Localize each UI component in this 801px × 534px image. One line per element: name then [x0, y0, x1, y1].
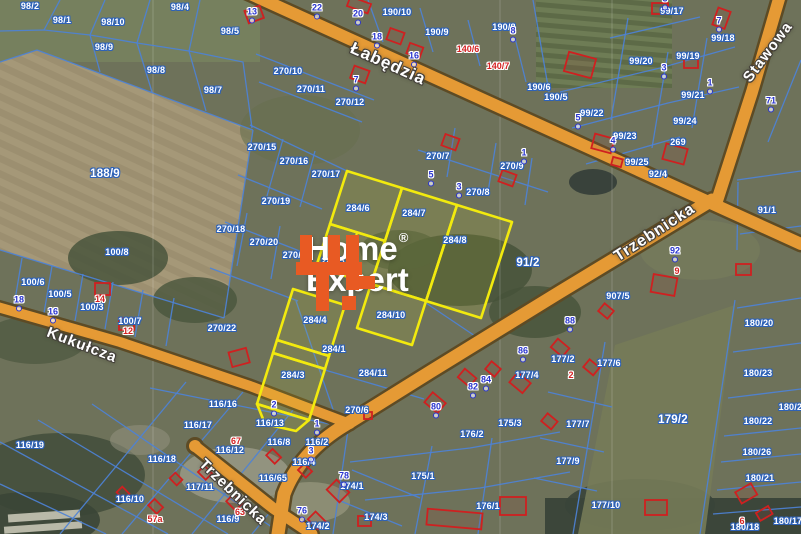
parcel-label: 284/8: [443, 235, 467, 245]
parcel-label: 177/9: [556, 456, 580, 466]
parcel-label: 270/7: [426, 151, 450, 161]
house-number-label: 8: [510, 26, 516, 43]
parcel-label: 180/21: [746, 473, 775, 483]
parcel-label: 176/1: [476, 501, 500, 511]
building-number-label: 12: [123, 326, 133, 336]
house-number-label: 20: [353, 9, 363, 26]
house-number-label: 86: [518, 346, 528, 363]
parcel-label: 270/17: [312, 169, 341, 179]
house-number-label: 7: [716, 16, 722, 33]
parcel-label: 99/19: [676, 51, 700, 61]
address-point-icon: [271, 411, 277, 417]
parcel-label: 270/15: [248, 142, 277, 152]
parcel-label: 98/7: [204, 85, 222, 95]
house-number-label: 7: [353, 75, 359, 92]
parcel-label: 180/17: [774, 516, 801, 526]
address-point-icon: [521, 159, 527, 165]
parcel-label: 98/2: [21, 1, 39, 11]
parcel-label: 177/10: [592, 500, 621, 510]
parcel-label: 270/21: [283, 250, 312, 260]
parcel-label: 99/24: [673, 116, 697, 126]
building-number-label: 140/6: [457, 44, 480, 54]
house-number-label: 76: [297, 506, 307, 523]
building-number-label: 140/7: [487, 61, 510, 71]
house-number-label: 3: [661, 63, 667, 80]
parcel-label: 270/10: [274, 66, 303, 76]
address-point-icon: [433, 413, 439, 419]
parcel-label: 284/6: [346, 203, 370, 213]
house-number-label: 3: [456, 182, 462, 199]
address-point-icon: [314, 14, 320, 20]
house-number-label: 18: [14, 295, 24, 312]
house-number-label: 1: [521, 148, 527, 165]
address-point-icon: [707, 89, 713, 95]
parcel-label: 98/5: [221, 26, 239, 36]
parcel-label: 116/8: [267, 437, 290, 447]
parcel-label: 269: [670, 137, 686, 147]
address-point-icon: [483, 386, 489, 392]
parcel-label: 270/12: [336, 97, 365, 107]
building-number-label: 67: [231, 436, 241, 446]
parcel-label: 284/11: [359, 368, 387, 378]
parcel-label: 91/1: [758, 205, 776, 215]
house-number-label: 1: [314, 419, 320, 436]
parcel-label: 177/2: [551, 354, 575, 364]
address-point-icon: [716, 27, 722, 33]
parcel-label: 98/10: [101, 17, 125, 27]
parcel-label: 284/7: [402, 208, 426, 218]
parcel-label: 190/6: [527, 82, 551, 92]
parcel-label: 180/26: [743, 447, 772, 457]
parcel-label: 116/12: [216, 445, 244, 455]
address-point-icon: [50, 318, 56, 324]
parcel-label: 98/8: [147, 65, 165, 75]
parcel-label: 116/19: [16, 440, 44, 450]
address-point-icon: [353, 86, 359, 92]
address-point-icon: [355, 20, 361, 26]
address-point-icon: [672, 257, 678, 263]
parcel-label: 99/22: [580, 108, 604, 118]
parcel-label: 99/25: [625, 157, 649, 167]
parcel-label: 100/7: [118, 316, 142, 326]
building-number-label: 57a: [147, 514, 162, 524]
address-point-icon: [520, 357, 526, 363]
house-number-label: 80: [431, 402, 441, 419]
house-number-label: 5: [575, 113, 581, 130]
parcel-label: 179/2: [658, 414, 688, 426]
parcel-label: 116/17: [184, 420, 212, 430]
address-point-icon: [299, 517, 305, 523]
house-number-label: 13: [247, 7, 257, 24]
parcel-label: 100/6: [21, 277, 45, 287]
parcel-label: 284/10: [377, 310, 406, 320]
parcel-label: 99/20: [629, 56, 653, 66]
parcel-label: 100/8: [105, 247, 129, 257]
address-point-icon: [661, 74, 667, 80]
parcel-label: 270/20: [250, 237, 279, 247]
parcel-label: 284/4: [303, 315, 327, 325]
parcel-label: 116/10: [116, 494, 144, 504]
parcel-label: 190/9: [425, 27, 449, 37]
parcel-label: 270/11: [297, 84, 325, 94]
parcel-label: 180/20: [745, 318, 774, 328]
address-point-icon: [470, 393, 476, 399]
address-point-icon: [341, 482, 347, 488]
map-canvas[interactable]: 98/298/198/1098/498/998/898/798/5188/910…: [0, 0, 801, 534]
parcel-label: 180/24: [779, 402, 801, 412]
parcel-label: 177/6: [597, 358, 621, 368]
parcel-label: 284/5: [321, 256, 345, 266]
house-number-label: 16: [48, 307, 58, 324]
address-point-icon: [314, 430, 320, 436]
parcel-label: 907/5: [606, 291, 630, 301]
house-number-label: 78: [339, 471, 349, 488]
parcel-label: 270/22: [208, 323, 237, 333]
address-point-icon: [662, 5, 668, 11]
parcel-label: 116/65: [259, 473, 287, 483]
parcel-label: 180/23: [744, 368, 773, 378]
parcel-label: 100/5: [48, 289, 72, 299]
house-number-label: 92: [670, 246, 680, 263]
house-number-label: 71: [766, 96, 776, 113]
parcel-label: 98/1: [53, 15, 71, 25]
parcel-label: 99/21: [681, 90, 705, 100]
house-number-label: 3: [662, 0, 668, 11]
address-point-icon: [428, 181, 434, 187]
house-number-label: 22: [312, 3, 322, 20]
parcel-label: 99/18: [711, 33, 735, 43]
address-point-icon: [249, 18, 255, 24]
parcel-label: 180/22: [744, 416, 773, 426]
parcel-label: 177/7: [566, 419, 590, 429]
house-number-label: 88: [565, 316, 575, 333]
house-number-label: 84: [481, 375, 491, 392]
parcel-label: 98/9: [95, 42, 113, 52]
address-point-icon: [510, 37, 516, 43]
parcel-label: 270/8: [466, 187, 490, 197]
parcel-label: 116/13: [256, 418, 284, 428]
parcel-label: 117/11: [186, 482, 214, 492]
parcel-label: 174/2: [306, 521, 330, 531]
building-number-label: 9: [674, 266, 679, 276]
address-point-icon: [456, 193, 462, 199]
parcel-label: 176/2: [460, 429, 484, 439]
parcel-label: 116/16: [209, 399, 237, 409]
parcel-label: 98/4: [171, 2, 189, 12]
parcel-label: 99/23: [613, 131, 637, 141]
parcel-label: 175/1: [411, 471, 435, 481]
parcel-label: 270/16: [280, 156, 309, 166]
parcel-label: 190/5: [544, 92, 568, 102]
parcel-label: 91/2: [516, 257, 539, 269]
address-point-icon: [308, 457, 314, 463]
parcel-label: 284/3: [281, 370, 305, 380]
address-point-icon: [567, 327, 573, 333]
parcel-label: 270/19: [262, 196, 291, 206]
house-number-label: 82: [468, 382, 478, 399]
parcel-label: 177/4: [515, 370, 539, 380]
address-point-icon: [575, 124, 581, 130]
parcel-label: 174/3: [364, 512, 388, 522]
parcel-label: 188/9: [90, 168, 120, 180]
parcel-label: 180/18: [731, 522, 760, 532]
address-point-icon: [768, 107, 774, 113]
house-number-label: 4: [610, 136, 616, 153]
house-number-label: 3: [308, 446, 314, 463]
address-point-icon: [610, 147, 616, 153]
parcel-label: 116/18: [148, 454, 176, 464]
parcel-label: 175/3: [498, 418, 522, 428]
parcel-label: 284/1: [322, 344, 346, 354]
building-number-label: 2: [568, 370, 573, 380]
parcel-label: 92/4: [649, 169, 667, 179]
house-number-label: 2: [271, 400, 277, 417]
parcel-label: 270/18: [217, 224, 246, 234]
house-number-label: 1: [707, 78, 713, 95]
parcel-label: 190/10: [383, 7, 412, 17]
house-number-label: 5: [428, 170, 434, 187]
building-number-label: 14: [95, 294, 105, 304]
parcel-label: 270/6: [345, 405, 369, 415]
address-point-icon: [16, 306, 22, 312]
building-number-label: 6: [739, 516, 744, 526]
